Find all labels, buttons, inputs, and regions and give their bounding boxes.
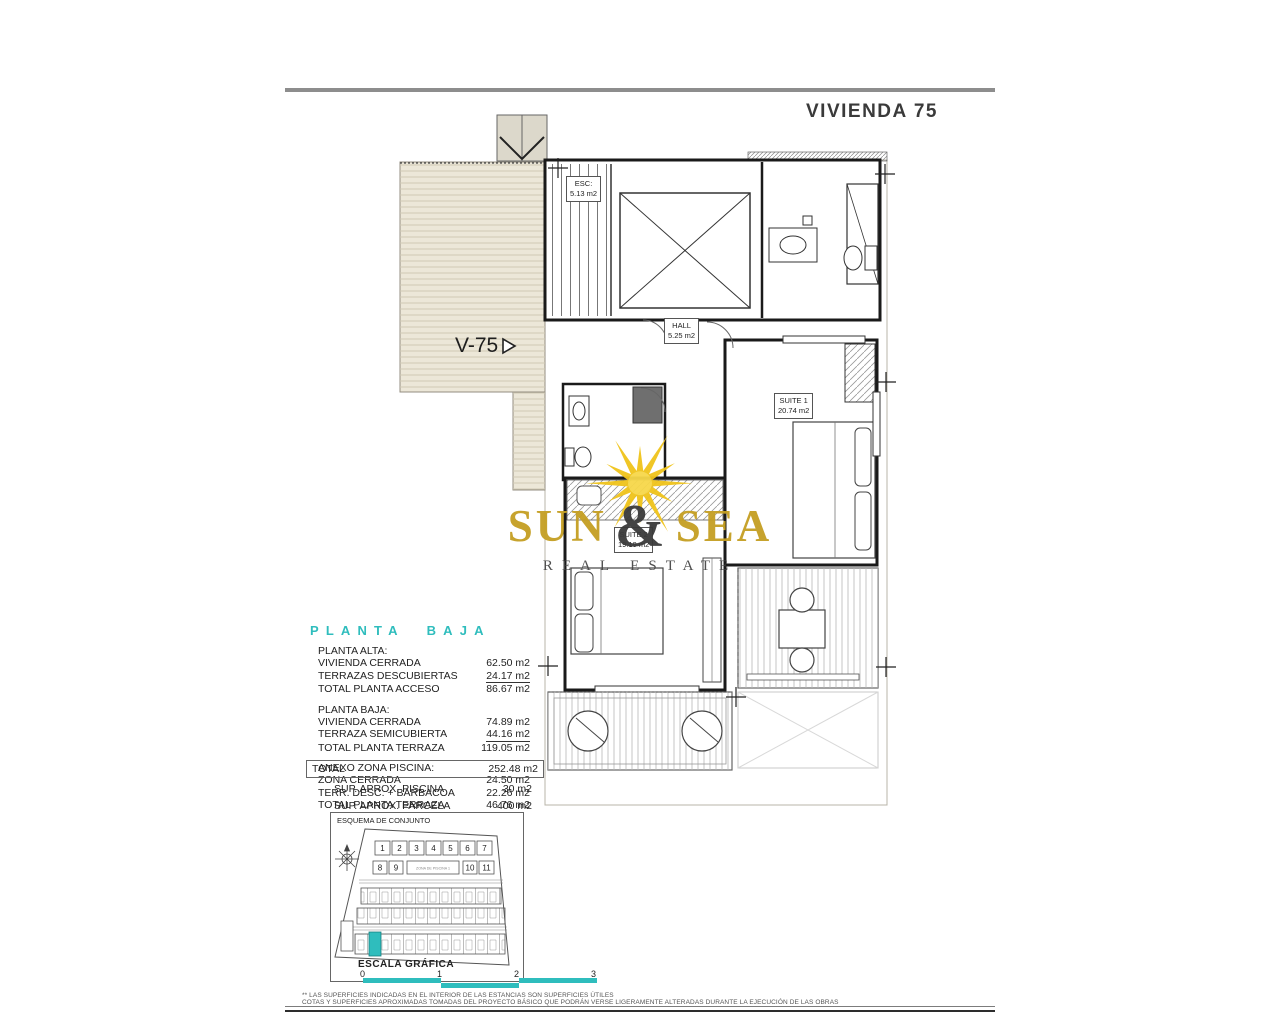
deck-chair: [790, 588, 814, 612]
open-terrace: [738, 692, 878, 768]
table-row: SUP. APROX. PARCELA400 m2: [334, 800, 532, 812]
room-label-hall: HALL 5.25 m2: [664, 318, 699, 344]
plan-sheet: VIVIENDA 75: [0, 0, 1280, 1024]
unit-number: 10: [466, 864, 475, 873]
table-row: TERRAZA SEMICUBIERTA44.16 m2: [318, 728, 530, 741]
unit-number: 7: [482, 844, 487, 853]
unit-number: 5: [448, 844, 453, 853]
unit-number: 11: [482, 864, 491, 873]
suite2-room: [565, 478, 725, 693]
scale-bar-segment: [363, 978, 441, 983]
footnote-line-1: ** LAS SUPERFICIES INDICADAS EN EL INTER…: [302, 992, 962, 999]
highlighted-unit: [369, 932, 381, 956]
top-divider: [285, 88, 995, 92]
pool-zone-label: ZONA DE PISCINA 1: [416, 867, 450, 871]
table-row: SUP. APROX. PISCINA30 m2: [334, 783, 532, 795]
unit-number: 3: [414, 844, 419, 853]
covered-deck: [738, 568, 878, 688]
unit-number: 8: [378, 864, 383, 873]
room-label-esc: ESC: 5.13 m2: [566, 176, 601, 202]
scale-bar-segment: [519, 978, 597, 983]
deck-table: [779, 610, 825, 648]
bottom-divider: [285, 1006, 995, 1012]
suite1-room: [725, 336, 880, 565]
site-plan-title: ESQUEMA DE CONJUNTO: [331, 813, 523, 825]
unit-number: 2: [397, 844, 402, 853]
areas-section-planta-alta: PLANTA ALTA: VIVIENDA CERRADA62.50 m2 TE…: [318, 645, 530, 696]
areas-heading: PLANTA BAJA: [310, 623, 491, 638]
site-plan-panel: ESQUEMA DE CONJUNTO 1: [330, 812, 524, 982]
roof-vent: [497, 115, 547, 161]
unit-number: 6: [465, 844, 470, 853]
side-steps: [513, 392, 545, 490]
unit-number: 1: [380, 844, 385, 853]
room-label-suite1: SUITE 1 20.74 m2: [774, 393, 813, 419]
table-row: VIVIENDA CERRADA62.50 m2: [318, 657, 530, 669]
areas-section-planta-baja: PLANTA BAJA: VIVIENDA CERRADA74.89 m2 TE…: [318, 704, 530, 755]
footnote-line-2: COTAS Y SUPERFICIES APROXIMADAS TOMADAS …: [302, 999, 962, 1006]
scale-bar-segment: [441, 983, 519, 988]
table-row: TOTAL PLANTA ACCESO86.67 m2: [318, 683, 530, 695]
unit-arrow-icon: [501, 337, 517, 355]
compass-icon: [335, 845, 359, 871]
unit-number: 4: [431, 844, 436, 853]
unit-number: 9: [394, 864, 399, 873]
site-plan-drawing: 1 2 3 4 5 6 7 8 9 10 11 ZONA DE PISCINA …: [331, 825, 523, 975]
bathroom-suite2: [563, 384, 665, 480]
unit-label: V-75: [455, 334, 517, 358]
table-row: TERRAZAS DESCUBIERTAS24.17 m2: [318, 670, 530, 683]
lower-terrace: [548, 692, 732, 770]
table-row: TOTAL PLANTA TERRAZA119.05 m2: [318, 742, 530, 754]
deck-chair: [790, 648, 814, 672]
lounge-chair: [568, 711, 608, 751]
total-row: TOTAL 252.48 m2: [306, 760, 544, 778]
lounge-chair: [682, 711, 722, 751]
table-row: VIVIENDA CERRADA74.89 m2: [318, 716, 530, 728]
room-label-suite2: SUITE 2 19.19 m2: [614, 527, 653, 553]
